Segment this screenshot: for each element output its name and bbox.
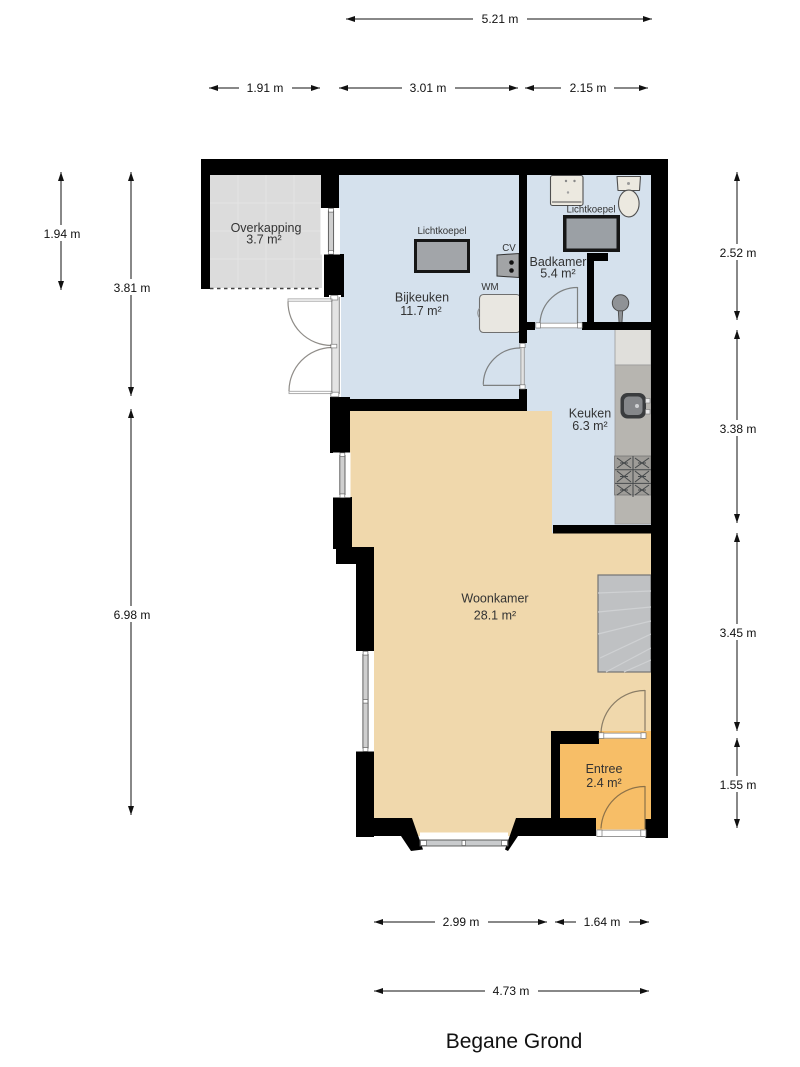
svg-text:2.52 m: 2.52 m: [720, 246, 757, 260]
svg-text:CV: CV: [502, 243, 516, 254]
svg-text:3.01 m: 3.01 m: [410, 81, 447, 95]
svg-text:Woonkamer: Woonkamer: [461, 592, 528, 606]
svg-text:1.91 m: 1.91 m: [247, 81, 284, 95]
svg-text:3.38 m: 3.38 m: [720, 422, 757, 436]
svg-text:2.15 m: 2.15 m: [570, 81, 607, 95]
svg-text:2.99 m: 2.99 m: [443, 915, 480, 929]
svg-text:1.94 m: 1.94 m: [44, 227, 81, 241]
svg-text:5.4 m²: 5.4 m²: [540, 267, 575, 281]
svg-text:Lichtkoepel: Lichtkoepel: [566, 205, 615, 216]
svg-text:28.1 m²: 28.1 m²: [474, 609, 516, 623]
svg-text:Begane Grond: Begane Grond: [446, 1030, 583, 1053]
svg-text:1.64 m: 1.64 m: [584, 915, 621, 929]
svg-text:11.7 m²: 11.7 m²: [400, 304, 441, 318]
svg-text:3.7 m²: 3.7 m²: [246, 233, 281, 247]
svg-text:1.55 m: 1.55 m: [720, 778, 757, 792]
svg-text:4.73 m: 4.73 m: [493, 984, 530, 998]
svg-text:6.98 m: 6.98 m: [114, 608, 151, 622]
svg-text:2.4 m²: 2.4 m²: [586, 776, 621, 790]
svg-text:Entree: Entree: [586, 762, 623, 776]
svg-text:WM: WM: [481, 282, 498, 293]
svg-text:6.3 m²: 6.3 m²: [572, 419, 607, 433]
svg-text:Lichtkoepel: Lichtkoepel: [417, 226, 466, 237]
svg-text:3.81 m: 3.81 m: [114, 281, 151, 295]
svg-text:3.45 m: 3.45 m: [720, 626, 757, 640]
svg-text:5.21 m: 5.21 m: [482, 12, 519, 26]
svg-text:Bijkeuken: Bijkeuken: [395, 291, 449, 305]
